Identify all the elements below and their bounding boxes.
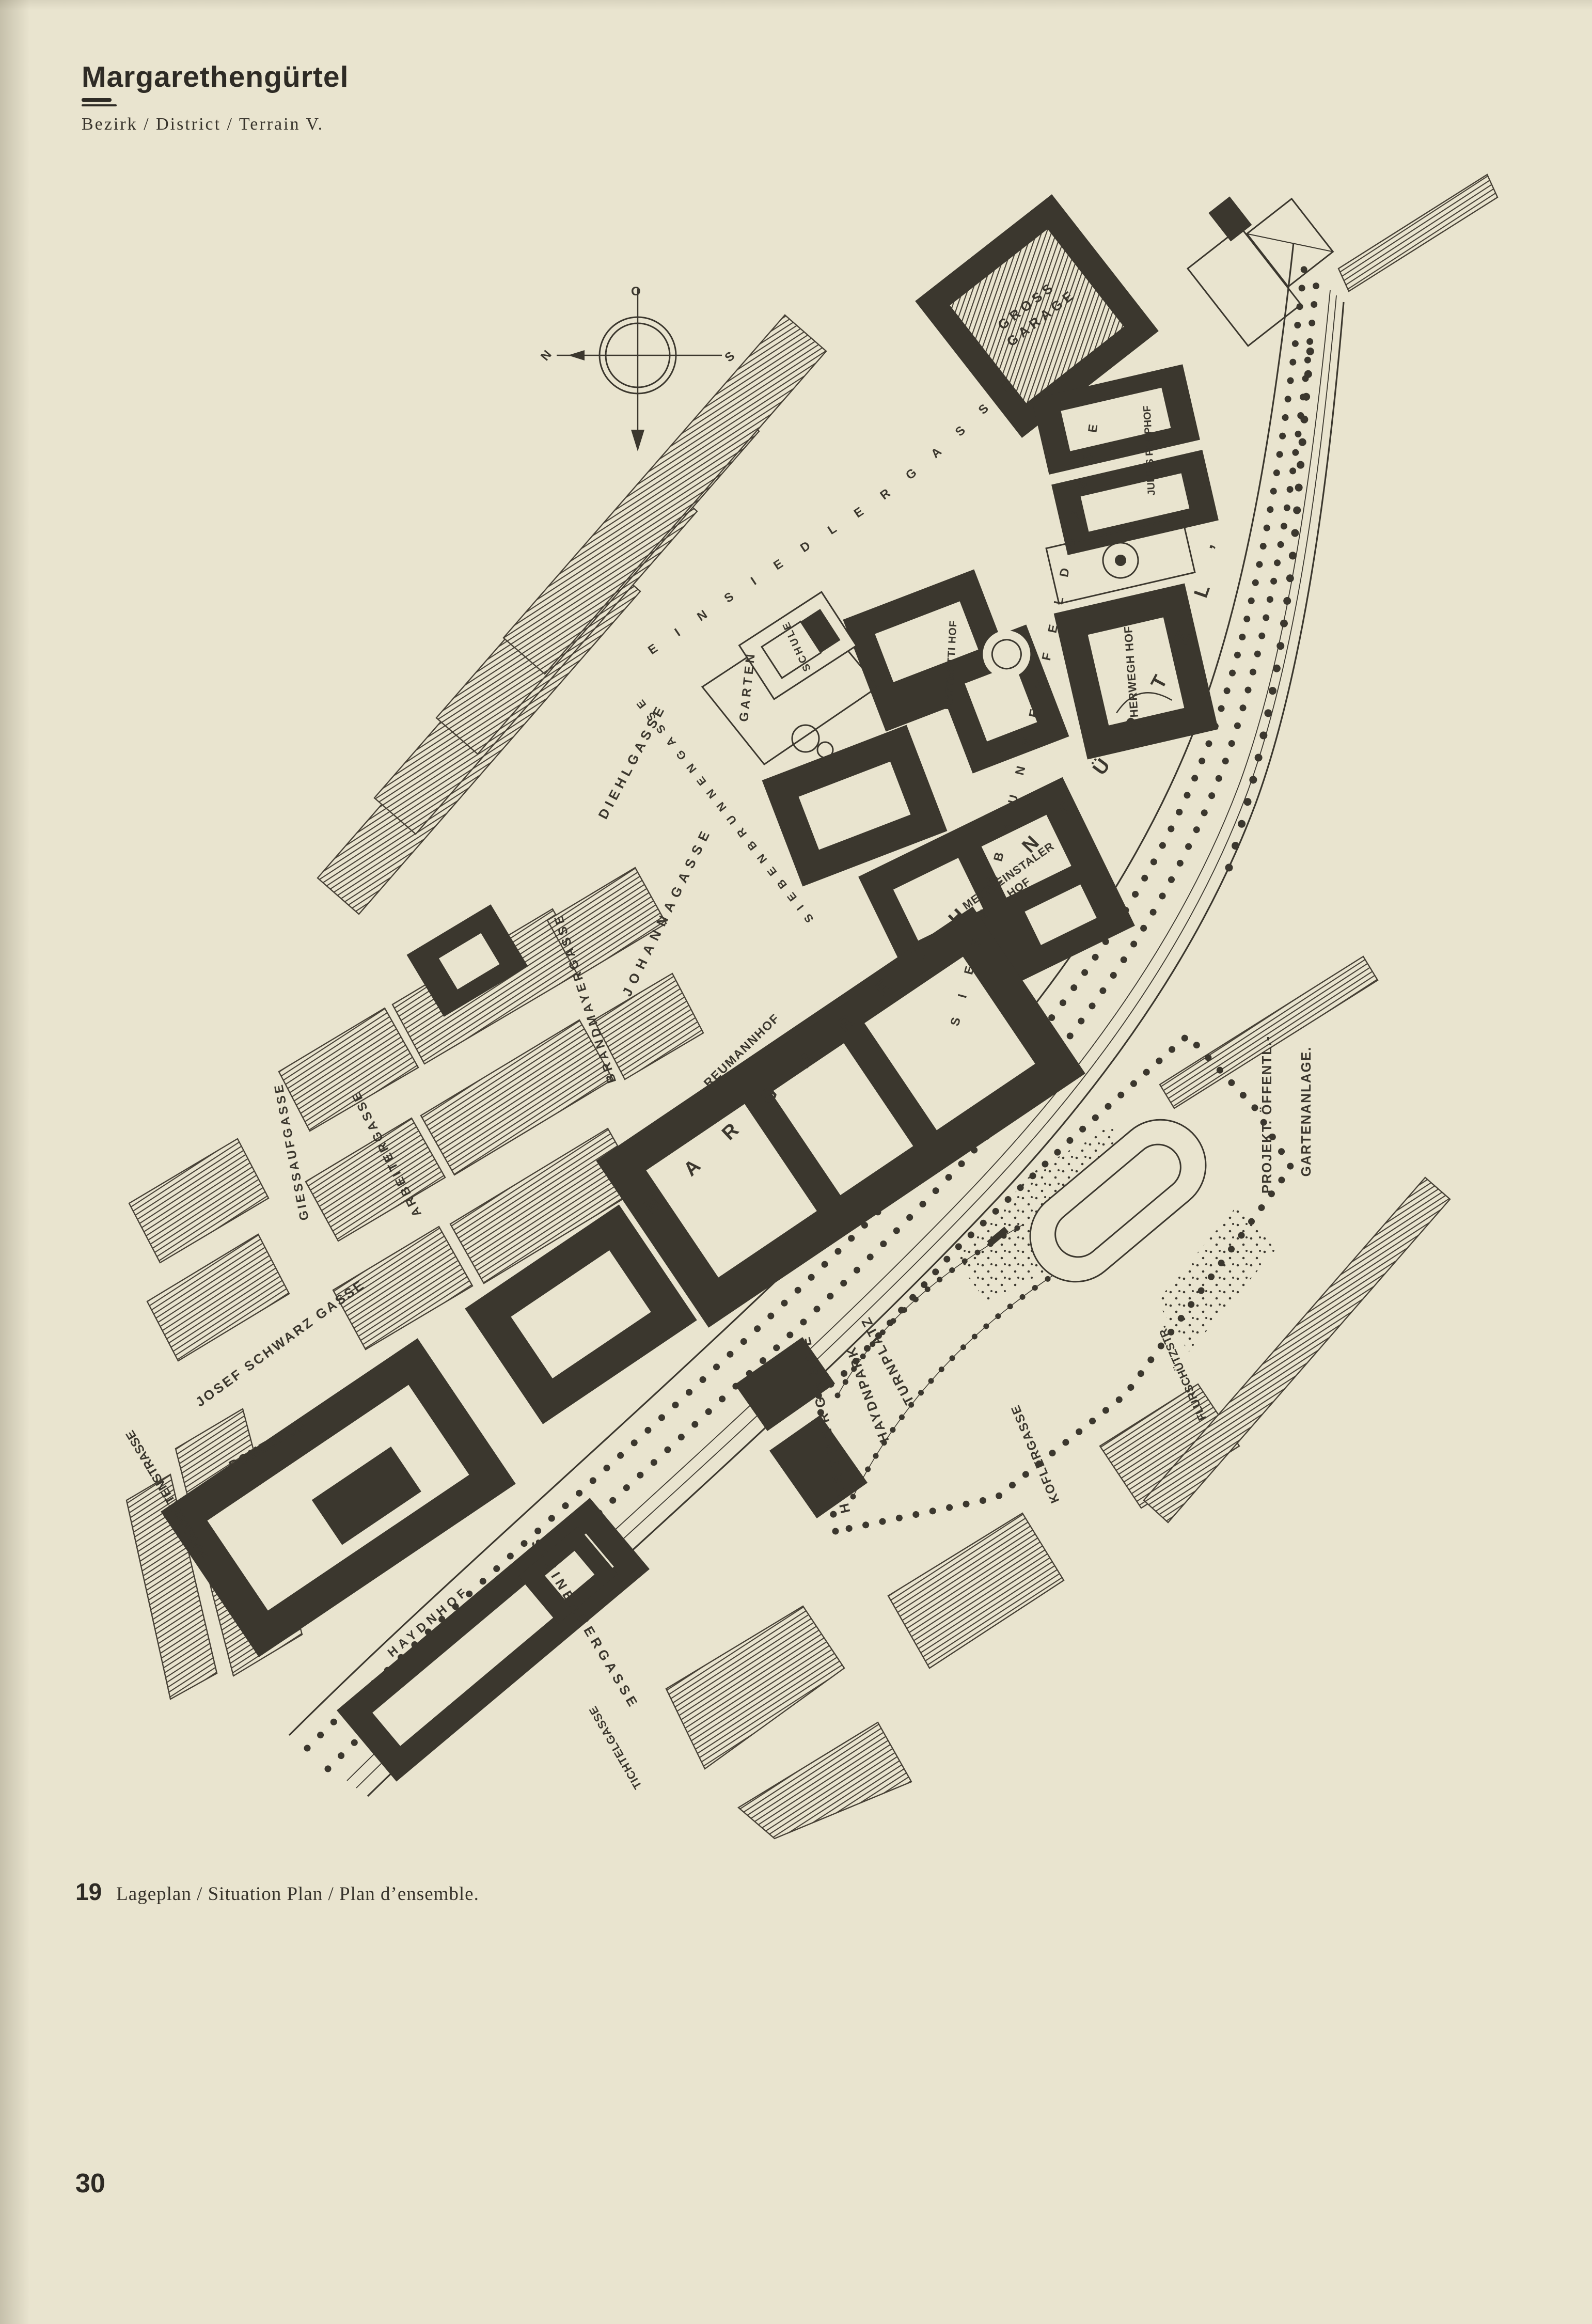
park-planting [1157, 1204, 1275, 1352]
julius-popphof-building [1032, 364, 1219, 555]
garden-court-circle [792, 725, 819, 752]
figure-caption-text: Lageplan / Situation Plan / Plan d’ensem… [116, 1883, 479, 1905]
city-block [666, 1606, 844, 1769]
city-block [279, 1008, 418, 1131]
city-block [888, 1513, 1064, 1668]
city-block [738, 1722, 911, 1839]
street-label-diehlgasse: DIEHLGASSE [595, 701, 669, 822]
scanned-page: Margarethengürtel Bezirk / District / Te… [0, 0, 1592, 2324]
compass-letter-n: N [538, 348, 555, 364]
garden-court-circle [817, 742, 833, 758]
figure-caption: 19 Lageplan / Situation Plan / Plan d’en… [75, 1878, 479, 1906]
street-label-tichtelgasse: TICHTELGASSE [586, 1704, 644, 1792]
compass-letter-o: O [631, 285, 641, 299]
embankment-hatch [1338, 175, 1498, 291]
site-plan-map: O N S MARGARETHENGÜRTEL’ EINSIEDLERGASSE… [0, 0, 1592, 2324]
compass-arrow [568, 350, 585, 360]
compass-arrow [631, 430, 644, 451]
figure-number: 19 [75, 1878, 102, 1906]
page-number: 30 [75, 2168, 105, 2199]
area-label-projekt-gartenanlage-line2: GARTENANLAGE. [1298, 1046, 1314, 1177]
garage-annex-outline [1169, 196, 1309, 346]
compass-letter-s: S [722, 349, 738, 365]
area-label-projekt-gartenanlage-line1: PROJEKT. ÖFFENTL.- [1259, 1035, 1274, 1194]
